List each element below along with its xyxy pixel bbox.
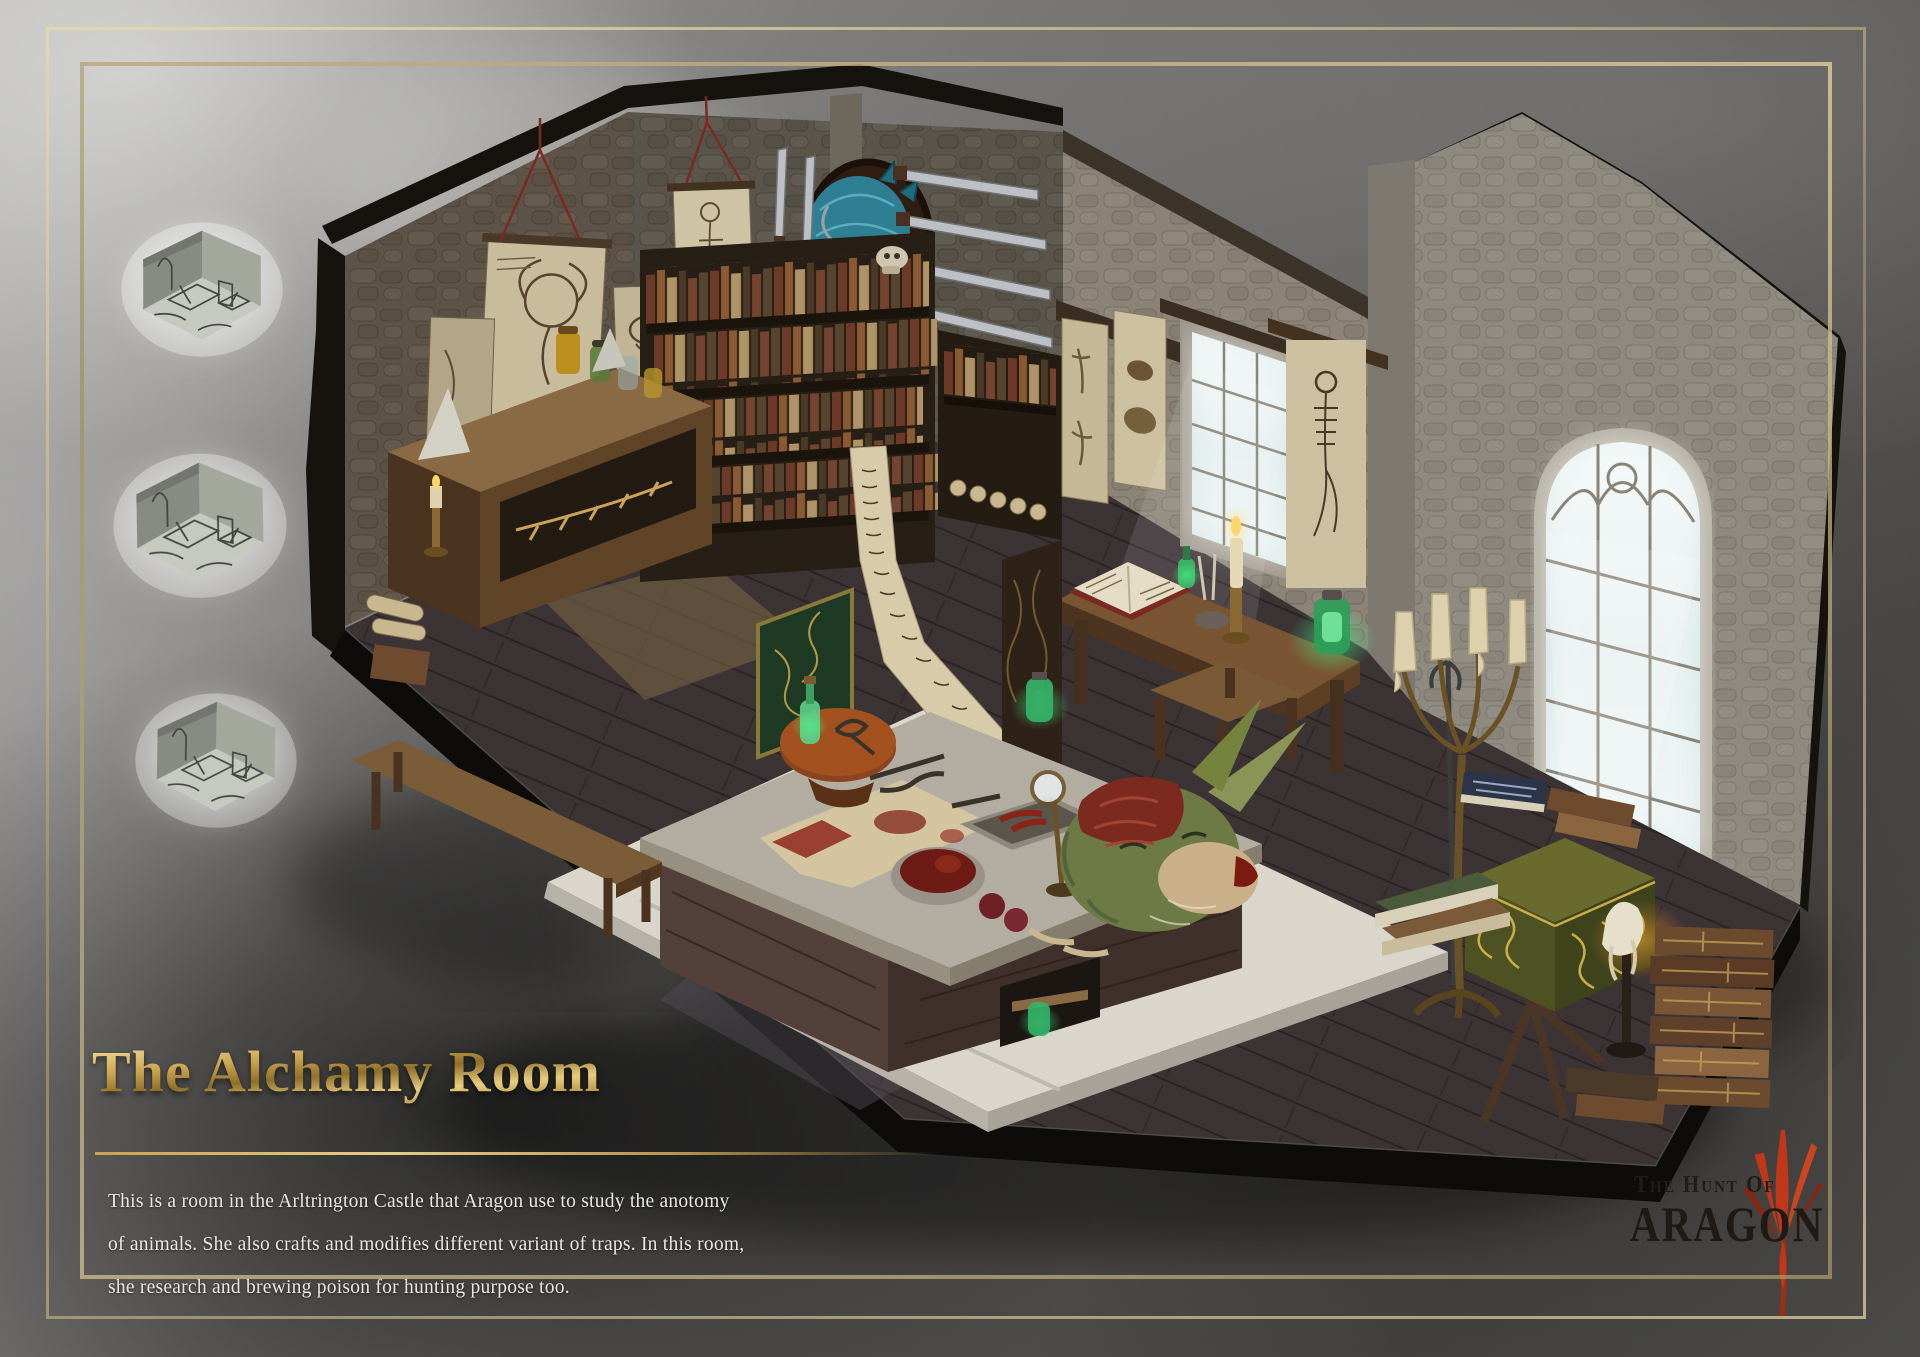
artwork-description: This is a room in the Arltrington Castle…	[108, 1180, 808, 1309]
studio-logo: The Hunt Of ARAGON	[1628, 1120, 1848, 1320]
logo-text-bottom: ARAGON	[1630, 1195, 1820, 1253]
scroll-cubby-shelf	[938, 330, 1062, 540]
concept-sketch-thumbnail-3	[121, 685, 311, 831]
mortar-bowl	[1195, 611, 1229, 629]
berry	[1004, 908, 1028, 932]
description-line-3: she research and brewing poison for hunt…	[108, 1266, 808, 1309]
specimen-boards	[1062, 302, 1166, 512]
concept-sketch-thumbnail-1	[118, 212, 286, 362]
concept-sketch-thumbnail-2	[100, 445, 300, 602]
description-line-1: This is a room in the Arltrington Castle…	[108, 1180, 808, 1223]
berry	[979, 893, 1005, 919]
artwork-title: The Alchamy Room	[92, 1038, 601, 1105]
title-underline	[95, 1152, 940, 1155]
blood-bowl	[891, 847, 985, 905]
concept-art-board: The Alchamy Room This is a room in the A…	[0, 0, 1920, 1357]
description-line-2: of animals. She also crafts and modifies…	[108, 1223, 808, 1266]
